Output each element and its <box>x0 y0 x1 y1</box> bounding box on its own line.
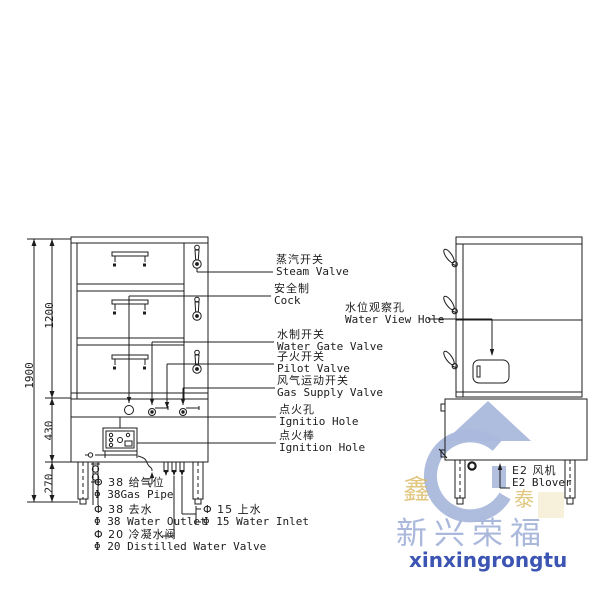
cock-knob-icon <box>125 406 134 415</box>
cock-valve-icon <box>193 297 201 320</box>
side-view <box>428 237 587 504</box>
cabinet-outline <box>71 237 208 399</box>
pilot-fitting-icon <box>85 453 93 457</box>
label-water-outlet: Φ 38 去水 Φ 38 Water Outlet <box>94 504 207 528</box>
drain-fitting-icon <box>468 462 475 469</box>
label-distilled-water-valve: Φ 20 冷凝水阀 Φ 20 Distilled Water Valve <box>94 529 266 553</box>
drawer-handle-icon <box>112 300 148 314</box>
drawer-handle-icon <box>112 355 148 369</box>
dimension-leg-height: 270 <box>42 474 55 494</box>
label-gas-supply-valve: 风气运动开关 Gas Supply Valve <box>277 375 383 399</box>
side-cabinet-outline <box>456 237 582 397</box>
label-blower: E2 风机 E2 Blover <box>512 465 572 489</box>
ignition-box <box>103 428 137 451</box>
technical-drawing-page: 鑫 泰 新兴荣福 xinxingrongtu <box>0 0 600 600</box>
front-view <box>71 237 208 505</box>
label-pilot-valve: 子火开关 Pilot Valve <box>277 351 350 375</box>
label-gas-pipe: Φ 38 给气位 Φ 38Gas Pipe <box>94 477 173 501</box>
water-view-hole <box>473 360 509 383</box>
water-gate-valve-icon <box>193 350 201 373</box>
label-cock: 安全制 Cock <box>274 283 310 307</box>
label-ignition-rod: 点火棒 Ignition Hole <box>279 430 365 454</box>
label-water-view-hole: 水位观察孔 Water View Hole <box>345 302 444 326</box>
dimension-total-height: 1900 <box>23 362 36 389</box>
side-base <box>445 399 587 460</box>
steam-valve-icon <box>193 245 201 268</box>
lever-valve-icon <box>149 406 169 416</box>
label-ignitio-hole: 点火孔 Ignitio Hole <box>279 404 358 428</box>
drawer-handle-icon <box>112 252 148 266</box>
dimension-cabinet-height: 1200 <box>43 302 56 329</box>
label-steam-valve: 蒸汽开关 Steam Valve <box>276 254 349 278</box>
label-water-inlet: Φ 15 上水 Φ 15 Water Inlet <box>203 504 309 528</box>
dimension-base-height: 430 <box>42 421 55 441</box>
base-section <box>71 399 208 471</box>
service-pipes <box>164 462 184 476</box>
gas-pipe-curve <box>138 456 152 471</box>
lever-valve-icon <box>180 406 200 416</box>
